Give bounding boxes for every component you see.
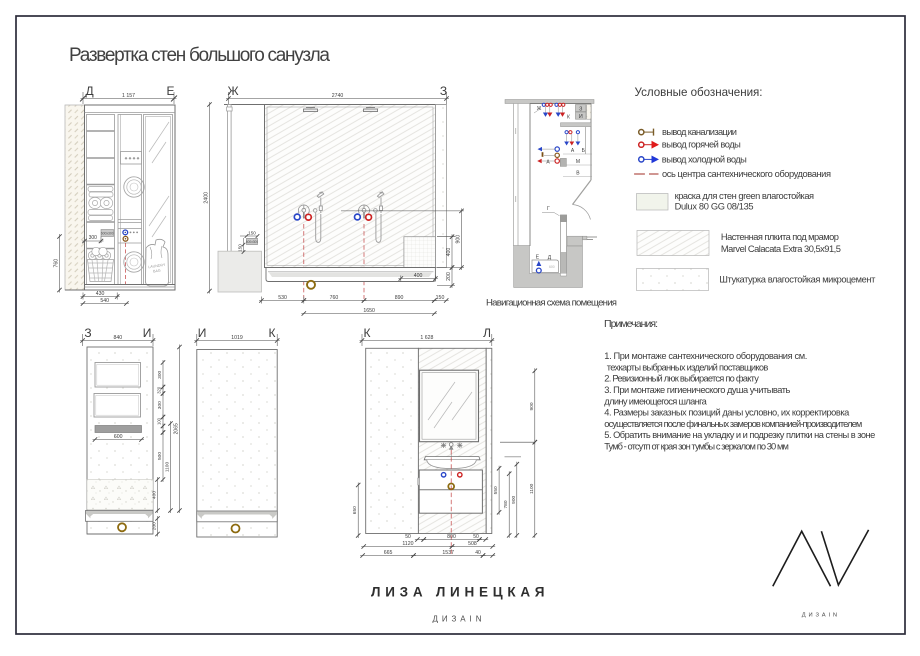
svg-text:осуществляется после финальных: осуществляется после финальных замеров к… bbox=[604, 419, 862, 429]
svg-text:И: И bbox=[579, 114, 583, 120]
svg-text:900: 900 bbox=[511, 495, 517, 503]
svg-text:длину имеющегося шланга: длину имеющегося шланга bbox=[604, 397, 707, 407]
svg-text:Ж: Ж bbox=[537, 106, 542, 112]
svg-text:И: И bbox=[143, 326, 152, 340]
svg-text:Л: Л bbox=[483, 326, 491, 340]
svg-text:300: 300 bbox=[157, 370, 163, 378]
svg-text:1100: 1100 bbox=[529, 483, 535, 494]
svg-text:1650: 1650 bbox=[363, 308, 375, 314]
svg-text:760: 760 bbox=[330, 295, 339, 301]
svg-text:вывод холодной воды: вывод холодной воды bbox=[662, 154, 747, 164]
svg-text:Marvel Calacata Extra 30,5x91,: Marvel Calacata Extra 30,5x91,5 bbox=[721, 244, 841, 254]
svg-text:вывод канализации: вывод канализации bbox=[662, 127, 737, 137]
svg-text:З: З bbox=[579, 106, 582, 112]
svg-text:300: 300 bbox=[89, 235, 98, 241]
svg-text:150: 150 bbox=[238, 244, 243, 252]
svg-text:3. При монтаже гигиенического: 3. При монтаже гигиенического душа учиты… bbox=[604, 385, 790, 395]
svg-text:К: К bbox=[567, 115, 570, 121]
svg-text:З: З bbox=[440, 84, 447, 98]
svg-text:600x300: 600x300 bbox=[246, 240, 258, 244]
svg-text:Dulux 80 GG 08/135: Dulux 80 GG 08/135 bbox=[675, 202, 754, 212]
svg-text:665: 665 bbox=[384, 550, 393, 556]
svg-text:300: 300 bbox=[157, 401, 163, 409]
svg-text:Настенная плкита под мрамор: Настенная плкита под мрамор bbox=[721, 232, 839, 242]
svg-text:ось центра сантехнического обо: ось центра сантехнического оборудования bbox=[662, 169, 831, 179]
svg-text:50: 50 bbox=[405, 534, 411, 540]
svg-text:50: 50 bbox=[473, 534, 479, 540]
svg-text:890: 890 bbox=[395, 295, 404, 301]
svg-text:1120: 1120 bbox=[402, 541, 413, 547]
svg-text:600: 600 bbox=[114, 434, 123, 440]
svg-text:Развертка стен большого санузл: Развертка стен большого санузла bbox=[69, 45, 330, 66]
svg-text:М: М bbox=[576, 159, 580, 165]
svg-text:2. Ревизионный люк выбирается: 2. Ревизионный люк выбирается по факту bbox=[604, 374, 759, 384]
svg-text:Д: Д bbox=[548, 255, 552, 261]
svg-text:1. При монтаже сантехнического: 1. При монтаже сантехнического оборудова… bbox=[604, 351, 807, 361]
svg-text:Навигационная схема помещения: Навигационная схема помещения bbox=[486, 298, 617, 309]
svg-text:320: 320 bbox=[157, 386, 162, 394]
svg-text:550: 550 bbox=[493, 486, 499, 494]
svg-text:И: И bbox=[198, 326, 207, 340]
svg-text:Примечания:: Примечания: bbox=[604, 318, 658, 330]
svg-text:600: 600 bbox=[549, 265, 555, 269]
svg-text:40: 40 bbox=[475, 550, 481, 556]
svg-text:вывод горячей воды: вывод горячей воды bbox=[662, 140, 741, 150]
svg-text:900: 900 bbox=[529, 402, 535, 410]
svg-text:508: 508 bbox=[468, 541, 477, 547]
svg-text:Е: Е bbox=[166, 84, 174, 98]
svg-text:1 157: 1 157 bbox=[122, 93, 135, 99]
svg-text:150: 150 bbox=[436, 295, 445, 301]
svg-text:780: 780 bbox=[503, 500, 509, 508]
svg-text:5. Обратить внимание на укладк: 5. Обратить внимание на укладку и и подр… bbox=[604, 430, 875, 440]
svg-text:2400: 2400 bbox=[204, 192, 210, 204]
svg-text:900: 900 bbox=[456, 235, 462, 244]
svg-text:760: 760 bbox=[54, 259, 60, 268]
svg-text:2740: 2740 bbox=[332, 93, 344, 99]
svg-text:Условные обозначения:: Условные обозначения: bbox=[635, 86, 763, 99]
svg-text:1019: 1019 bbox=[231, 335, 243, 341]
svg-text:840: 840 bbox=[113, 335, 122, 341]
svg-text:400: 400 bbox=[446, 248, 452, 257]
svg-text:З: З bbox=[84, 326, 91, 340]
svg-text:540: 540 bbox=[100, 298, 109, 304]
svg-text:Тумб - отсутп от края зон тумб: Тумб - отсутп от края зон тумбы с зеркал… bbox=[604, 441, 789, 451]
svg-text:Г: Г bbox=[547, 206, 550, 212]
svg-text:Штукатурка влагостойкая микроц: Штукатурка влагостойкая микроцемент bbox=[719, 274, 876, 284]
svg-text:техкарты выбранных изделий пос: техкарты выбранных изделий поставщиков bbox=[607, 362, 769, 372]
svg-text:430: 430 bbox=[96, 291, 105, 297]
svg-text:400: 400 bbox=[152, 491, 158, 499]
svg-text:530: 530 bbox=[278, 295, 287, 301]
svg-text:100: 100 bbox=[157, 417, 162, 425]
svg-text:К: К bbox=[269, 326, 276, 340]
svg-text:2065: 2065 bbox=[174, 423, 180, 434]
svg-text:1 628: 1 628 bbox=[420, 335, 433, 341]
svg-text:Ж: Ж bbox=[227, 84, 238, 98]
svg-text:400: 400 bbox=[414, 273, 423, 279]
svg-text:краска для стен green влагосто: краска для стен green влагостойкая bbox=[675, 191, 815, 201]
svg-text:1537: 1537 bbox=[442, 550, 454, 556]
svg-text:200: 200 bbox=[446, 272, 452, 281]
svg-text:150: 150 bbox=[248, 230, 256, 235]
svg-text:200: 200 bbox=[152, 522, 158, 530]
svg-text:4. Размеры заказных позиций да: 4. Размеры заказных позиций даны условно… bbox=[604, 408, 850, 418]
svg-text:650: 650 bbox=[352, 506, 358, 514]
svg-text:500: 500 bbox=[157, 452, 163, 460]
svg-text:1100: 1100 bbox=[165, 462, 171, 473]
svg-text:600x300: 600x300 bbox=[101, 232, 114, 236]
svg-text:Д: Д bbox=[86, 84, 94, 98]
svg-text:К: К bbox=[364, 326, 371, 340]
svg-text:800: 800 bbox=[447, 534, 456, 540]
